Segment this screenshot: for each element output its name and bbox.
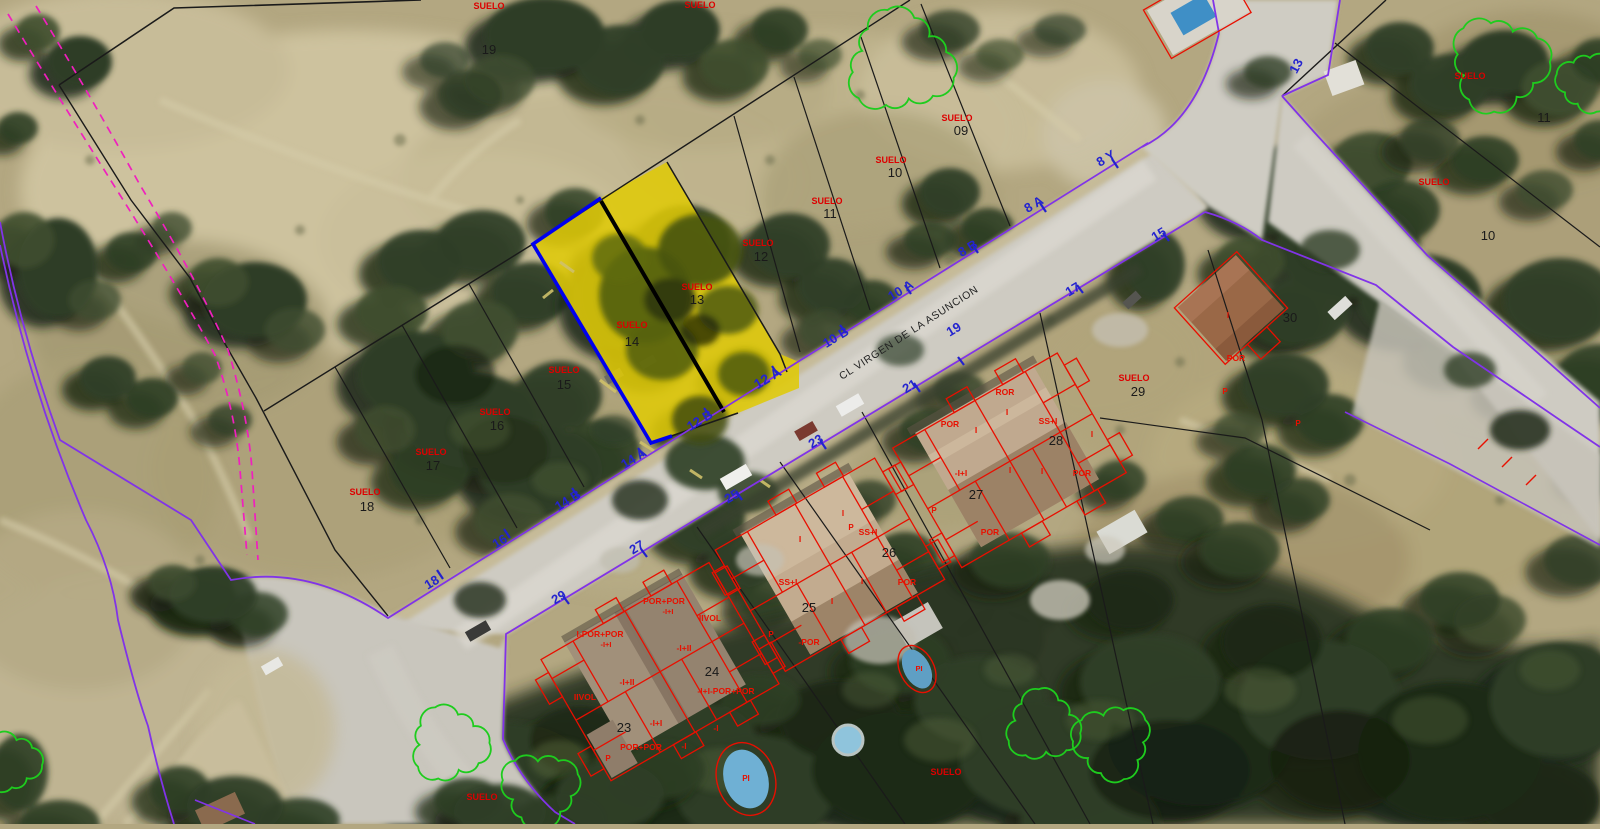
svg-text:26: 26 (882, 545, 896, 560)
svg-text:P: P (848, 523, 854, 532)
svg-text:25: 25 (802, 600, 816, 615)
svg-text:17: 17 (426, 458, 440, 473)
svg-text:SUELO: SUELO (473, 1, 504, 11)
svg-text:SS+I: SS+I (1039, 416, 1058, 426)
svg-text:I: I (831, 596, 833, 606)
svg-text:I: I (1009, 465, 1011, 475)
svg-text:I: I (1227, 311, 1229, 320)
svg-text:14: 14 (625, 334, 639, 349)
svg-text:POR+POR: POR+POR (643, 596, 685, 606)
svg-text:SUELO: SUELO (811, 196, 842, 206)
svg-text:23: 23 (617, 720, 631, 735)
svg-text:PI: PI (742, 774, 750, 783)
svg-text:PI: PI (915, 664, 922, 673)
svg-text:12: 12 (754, 249, 768, 264)
svg-text:SUELO: SUELO (742, 238, 773, 248)
svg-text:ROR: ROR (996, 387, 1015, 397)
svg-text:28: 28 (1049, 433, 1063, 448)
svg-text:SUELO: SUELO (941, 113, 972, 123)
svg-text:SUELO: SUELO (875, 155, 906, 165)
svg-text:POR: POR (1227, 353, 1245, 363)
svg-text:P: P (605, 754, 611, 763)
svg-text:15: 15 (557, 377, 571, 392)
svg-text:SUELO: SUELO (1118, 373, 1149, 383)
svg-text:P: P (931, 506, 937, 515)
svg-text:24: 24 (705, 664, 719, 679)
svg-text:I: I (1041, 466, 1043, 476)
svg-text:SUELO: SUELO (479, 407, 510, 417)
svg-text:11: 11 (1537, 110, 1551, 125)
svg-text:I-POR+POR: I-POR+POR (577, 629, 624, 639)
svg-text:POR+POR: POR+POR (620, 742, 662, 752)
svg-text:I: I (975, 425, 977, 435)
svg-text:SS+I: SS+I (779, 577, 798, 587)
svg-text:I: I (1006, 407, 1008, 417)
svg-text:-I+II: -I+II (620, 677, 635, 687)
svg-text:SUELO: SUELO (684, 0, 715, 10)
svg-text:09: 09 (954, 123, 968, 138)
svg-text:10: 10 (1481, 228, 1495, 243)
svg-text:POR: POR (981, 527, 999, 537)
svg-text:POR: POR (941, 419, 959, 429)
svg-text:I: I (1091, 430, 1093, 439)
svg-text:SUELO: SUELO (930, 767, 961, 777)
svg-text:SUELO: SUELO (681, 282, 712, 292)
svg-text:-POR: -POR (798, 637, 819, 647)
svg-text:18: 18 (360, 499, 374, 514)
svg-text:I: I (861, 576, 863, 586)
svg-text:-I+I: -I+I (662, 607, 673, 616)
svg-text:13: 13 (690, 292, 704, 307)
svg-text:11: 11 (823, 206, 837, 221)
svg-text:POR: POR (1073, 468, 1091, 478)
svg-text:16: 16 (490, 418, 504, 433)
svg-text:I: I (842, 509, 844, 518)
svg-text:P: P (1222, 387, 1228, 396)
svg-text:POR: POR (898, 577, 916, 587)
svg-text:-I+I-POR+POR: -I+I-POR+POR (697, 686, 754, 696)
svg-text:SUELO: SUELO (616, 320, 647, 330)
svg-text:SUELO: SUELO (349, 487, 380, 497)
svg-text:-I+I: -I+I (600, 640, 611, 649)
svg-text:10: 10 (888, 165, 902, 180)
svg-text:-I+I: -I+I (955, 468, 968, 478)
svg-text:SUELO: SUELO (466, 792, 497, 802)
svg-text:IIVOL: IIVOL (699, 613, 721, 623)
svg-text:27: 27 (969, 487, 983, 502)
svg-text:P: P (1295, 419, 1301, 428)
svg-text:29: 29 (1131, 384, 1145, 399)
svg-text:-I: -I (713, 723, 718, 733)
svg-text:I: I (799, 534, 801, 544)
svg-text:19: 19 (482, 42, 496, 57)
svg-text:SUELO: SUELO (1454, 71, 1485, 81)
svg-text:30: 30 (1283, 310, 1297, 325)
svg-text:SS+I: SS+I (859, 527, 878, 537)
svg-text:P: P (768, 630, 774, 639)
svg-text:SUELO: SUELO (548, 365, 579, 375)
svg-text:-I: -I (681, 741, 686, 751)
svg-text:SUELO: SUELO (1418, 177, 1449, 187)
svg-text:-I+II: -I+II (677, 643, 692, 653)
svg-text:IIVOL: IIVOL (574, 692, 596, 702)
svg-text:SUELO: SUELO (415, 447, 446, 457)
svg-text:-I+I: -I+I (650, 718, 663, 728)
